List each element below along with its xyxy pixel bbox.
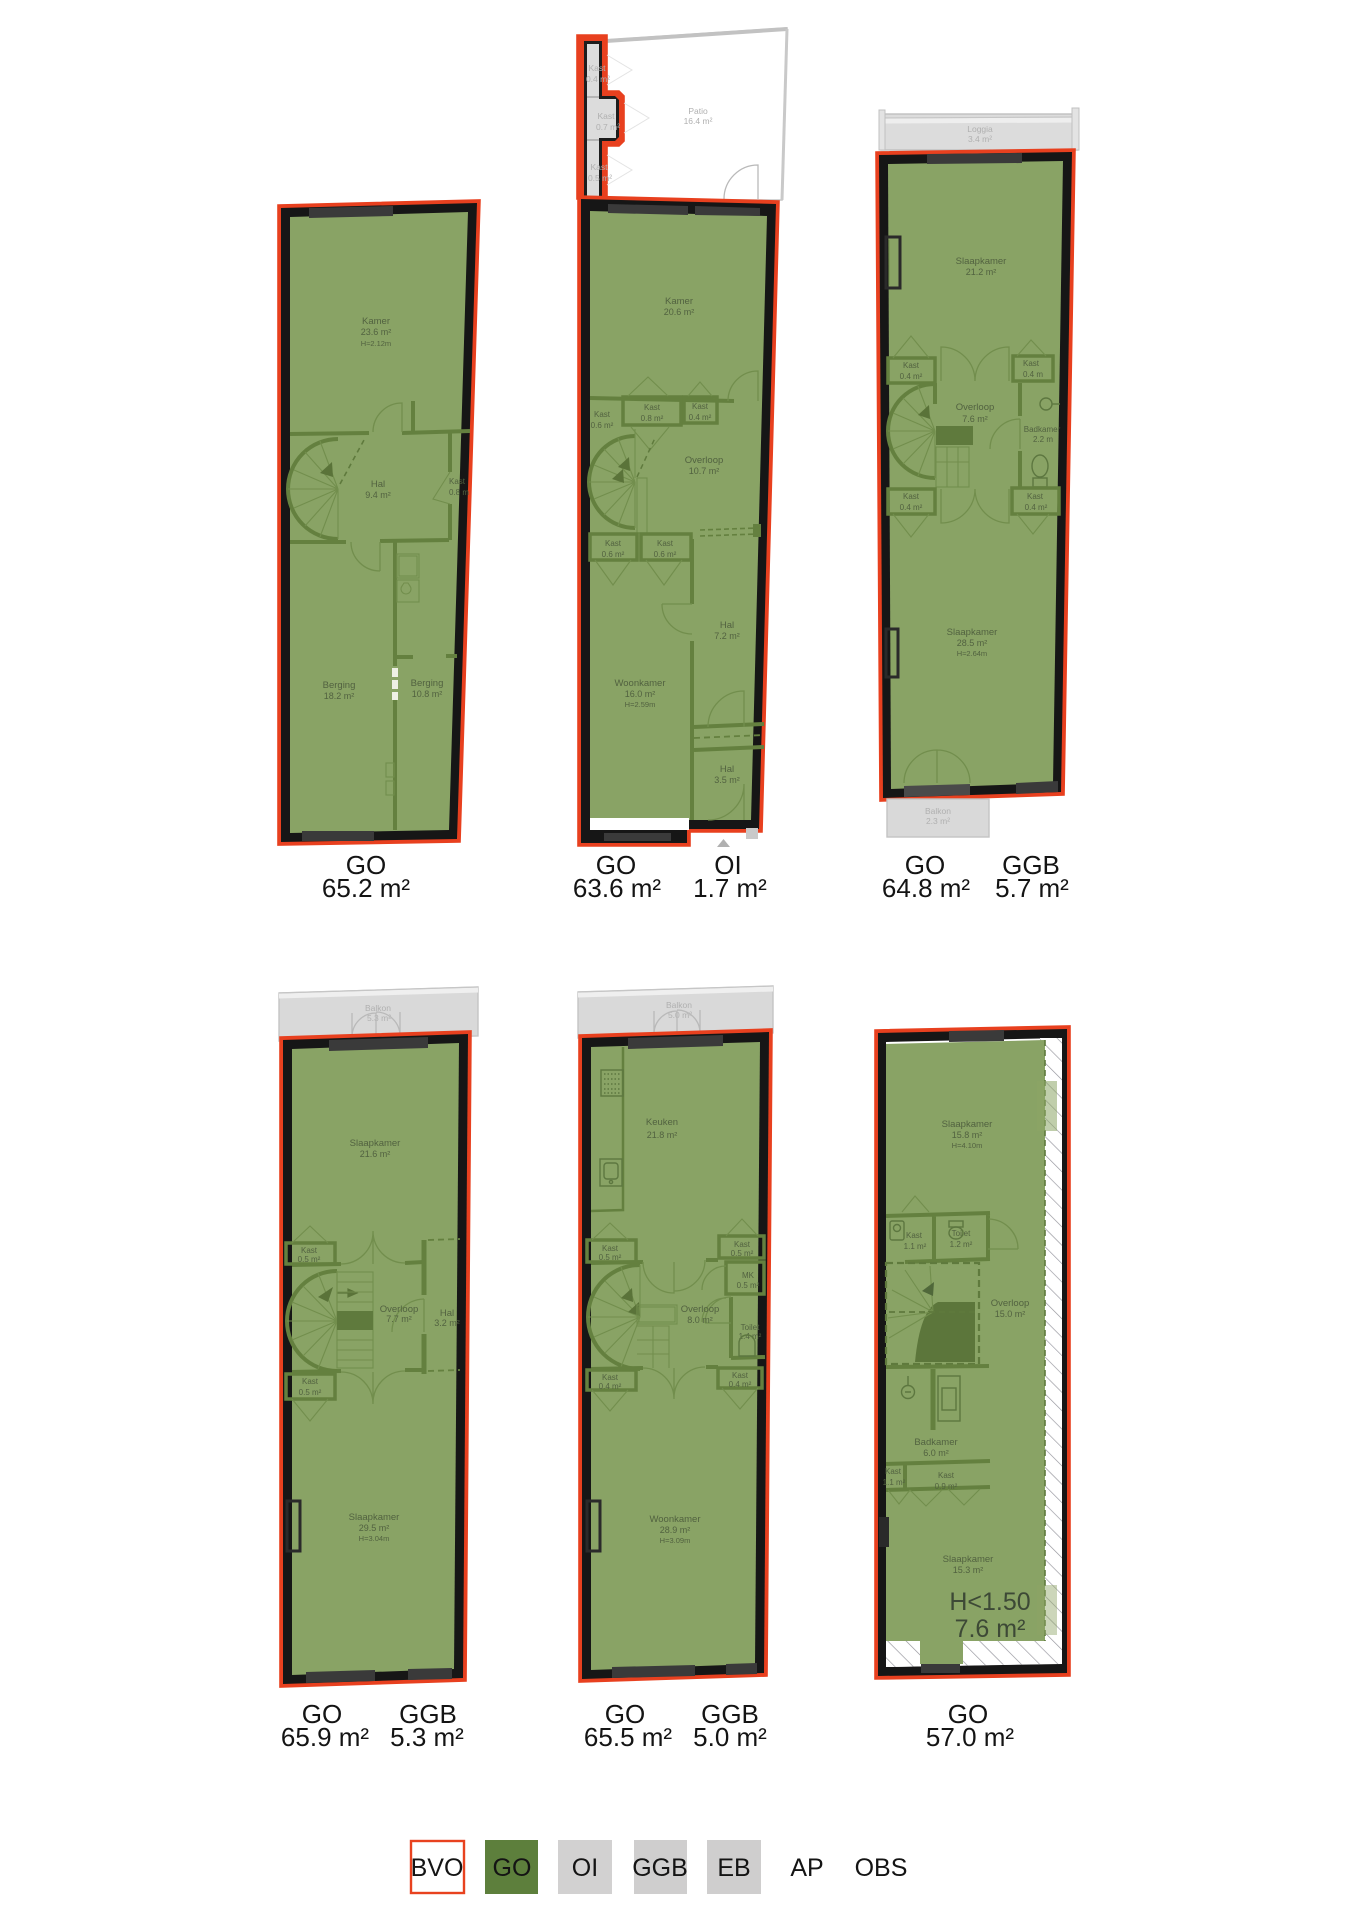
svg-text:0.5 m²: 0.5 m² xyxy=(299,1388,322,1397)
svg-text:Kamer: Kamer xyxy=(362,316,390,327)
svg-text:18.2 m²: 18.2 m² xyxy=(324,691,355,701)
svg-text:H≈2.64m: H≈2.64m xyxy=(957,649,987,658)
svg-text:OI: OI xyxy=(572,1854,598,1882)
svg-text:Kast: Kast xyxy=(602,1244,619,1253)
svg-text:0.4 m²: 0.4 m² xyxy=(900,503,923,512)
svg-text:3.5 m²: 3.5 m² xyxy=(714,775,740,785)
svg-text:5.7 m²: 5.7 m² xyxy=(995,873,1069,903)
svg-text:Loggia: Loggia xyxy=(967,124,993,134)
svg-text:Woonkamer: Woonkamer xyxy=(614,678,665,689)
svg-text:16.4 m²: 16.4 m² xyxy=(684,116,713,126)
svg-text:Kast: Kast xyxy=(657,539,674,548)
svg-text:0.6 m²: 0.6 m² xyxy=(654,550,677,559)
svg-text:BVO: BVO xyxy=(411,1854,464,1882)
svg-text:16.0 m²: 16.0 m² xyxy=(625,689,656,699)
svg-text:20.6 m²: 20.6 m² xyxy=(664,307,695,317)
svg-text:1.7 m²: 1.7 m² xyxy=(693,873,767,903)
svg-text:Kast: Kast xyxy=(449,477,466,486)
svg-text:5.0 m²: 5.0 m² xyxy=(693,1722,767,1752)
svg-text:3.2 m²: 3.2 m² xyxy=(434,1318,460,1328)
svg-text:Slaapkamer: Slaapkamer xyxy=(947,627,998,638)
svg-text:H=2.59m: H=2.59m xyxy=(625,700,656,709)
svg-text:Kast: Kast xyxy=(597,111,615,121)
svg-text:Kast: Kast xyxy=(692,402,709,411)
svg-text:1.1 m²: 1.1 m² xyxy=(904,1242,927,1251)
svg-text:Kast: Kast xyxy=(732,1371,749,1380)
svg-text:0.4 m²: 0.4 m² xyxy=(900,372,923,381)
svg-text:0.6 m²: 0.6 m² xyxy=(602,550,625,559)
svg-text:7.7 m²: 7.7 m² xyxy=(386,1314,412,1324)
svg-text:Balkon: Balkon xyxy=(925,806,951,816)
svg-text:Kast: Kast xyxy=(903,492,920,501)
svg-text:GGB: GGB xyxy=(632,1854,688,1882)
svg-text:Hal: Hal xyxy=(371,479,385,490)
svg-text:Hal: Hal xyxy=(720,764,734,775)
svg-text:15.8 m²: 15.8 m² xyxy=(952,1130,983,1140)
svg-text:0.4 m: 0.4 m xyxy=(1023,370,1043,379)
svg-text:Kast: Kast xyxy=(644,403,661,412)
svg-text:9.4 m²: 9.4 m² xyxy=(365,490,391,500)
svg-text:Kamer: Kamer xyxy=(665,296,693,307)
svg-text:10.8 m²: 10.8 m² xyxy=(412,689,443,699)
svg-text:GO: GO xyxy=(493,1854,532,1882)
svg-text:Overloop: Overloop xyxy=(685,455,724,466)
svg-text:1.1 m²: 1.1 m² xyxy=(883,1478,906,1487)
svg-text:H=3.09m: H=3.09m xyxy=(660,1536,691,1545)
svg-text:Kast: Kast xyxy=(588,63,606,73)
svg-text:5.3 m²: 5.3 m² xyxy=(390,1722,464,1752)
svg-text:0.5 m²: 0.5 m² xyxy=(599,1253,622,1262)
svg-text:Hal: Hal xyxy=(720,620,734,631)
svg-text:65.5 m²: 65.5 m² xyxy=(584,1722,672,1752)
svg-text:0.8 m: 0.8 m xyxy=(449,488,469,497)
svg-text:Balkon: Balkon xyxy=(666,1000,692,1010)
svg-text:Slaapkamer: Slaapkamer xyxy=(943,1554,994,1565)
svg-text:7.6 m²: 7.6 m² xyxy=(962,414,988,424)
svg-text:0.5 m²: 0.5 m² xyxy=(588,173,612,183)
svg-text:23.6 m²: 23.6 m² xyxy=(361,327,392,337)
svg-text:Badkamer: Badkamer xyxy=(914,1437,957,1448)
svg-text:Kast: Kast xyxy=(302,1377,319,1386)
svg-text:Slaapkamer: Slaapkamer xyxy=(942,1119,993,1130)
svg-text:Kast: Kast xyxy=(301,1246,318,1255)
svg-text:Overloop: Overloop xyxy=(991,1298,1030,1309)
svg-text:10.7 m²: 10.7 m² xyxy=(689,466,720,476)
svg-text:15.0 m²: 15.0 m² xyxy=(995,1309,1026,1319)
svg-text:Kast: Kast xyxy=(590,162,608,172)
svg-text:OBS: OBS xyxy=(855,1854,908,1882)
svg-text:Slaapkamer: Slaapkamer xyxy=(956,256,1007,267)
svg-text:0.4 m²: 0.4 m² xyxy=(1025,503,1048,512)
svg-text:28.9 m²: 28.9 m² xyxy=(660,1525,691,1535)
svg-text:MK: MK xyxy=(742,1271,755,1280)
svg-text:0.4 m²: 0.4 m² xyxy=(729,1380,752,1389)
svg-text:H≈2.12m: H≈2.12m xyxy=(361,339,391,348)
svg-text:Slaapkamer: Slaapkamer xyxy=(349,1512,400,1523)
svg-text:Badkamer: Badkamer xyxy=(1024,425,1061,434)
svg-text:64.8 m²: 64.8 m² xyxy=(882,873,970,903)
svg-text:Kast: Kast xyxy=(903,361,920,370)
svg-text:Kast: Kast xyxy=(885,1467,902,1476)
svg-text:0.4 m²: 0.4 m² xyxy=(586,74,610,84)
svg-text:0.5 m²: 0.5 m² xyxy=(731,1249,754,1258)
svg-text:Kast: Kast xyxy=(938,1471,955,1480)
svg-text:0.9 m²: 0.9 m² xyxy=(935,1482,958,1491)
svg-text:0.5 m²: 0.5 m² xyxy=(737,1281,760,1290)
svg-text:0.4 m²: 0.4 m² xyxy=(689,413,712,422)
svg-text:Kast: Kast xyxy=(906,1231,923,1240)
svg-text:Patio: Patio xyxy=(688,106,708,116)
svg-text:H=3.04m: H=3.04m xyxy=(359,1534,390,1543)
svg-text:0.4 m²: 0.4 m² xyxy=(599,1382,622,1391)
svg-text:Keuken: Keuken xyxy=(646,1117,678,1128)
svg-text:EB: EB xyxy=(717,1854,750,1882)
svg-text:H<1.50: H<1.50 xyxy=(949,1588,1030,1616)
svg-text:Kast: Kast xyxy=(602,1373,619,1382)
svg-text:57.0 m²: 57.0 m² xyxy=(926,1722,1014,1752)
svg-text:Toilet: Toilet xyxy=(741,1323,760,1332)
svg-text:Overloop: Overloop xyxy=(956,402,995,413)
svg-text:7.6 m²: 7.6 m² xyxy=(955,1615,1026,1643)
svg-text:65.9 m²: 65.9 m² xyxy=(281,1722,369,1752)
svg-text:2.2 m: 2.2 m xyxy=(1033,435,1053,444)
svg-text:28.5 m²: 28.5 m² xyxy=(957,638,988,648)
svg-text:8.0 m²: 8.0 m² xyxy=(687,1315,713,1325)
svg-text:Slaapkamer: Slaapkamer xyxy=(350,1138,401,1149)
svg-text:65.2 m²: 65.2 m² xyxy=(322,873,410,903)
svg-text:7.2 m²: 7.2 m² xyxy=(714,631,740,641)
svg-text:0.5 m²: 0.5 m² xyxy=(298,1255,321,1264)
svg-text:AP: AP xyxy=(790,1854,823,1882)
svg-text:63.6 m²: 63.6 m² xyxy=(573,873,661,903)
svg-text:21.2 m²: 21.2 m² xyxy=(966,267,997,277)
svg-text:Berging: Berging xyxy=(323,680,356,691)
svg-text:21.6 m²: 21.6 m² xyxy=(360,1149,391,1159)
svg-text:Kast: Kast xyxy=(1027,492,1044,501)
svg-text:29.5 m²: 29.5 m² xyxy=(359,1523,390,1533)
svg-text:Kast: Kast xyxy=(734,1240,751,1249)
svg-text:Kast: Kast xyxy=(605,539,622,548)
svg-text:Berging: Berging xyxy=(411,678,444,689)
svg-text:21.8 m²: 21.8 m² xyxy=(647,1130,678,1140)
svg-text:3.4 m²: 3.4 m² xyxy=(968,134,992,144)
svg-text:6.0 m²: 6.0 m² xyxy=(923,1448,949,1458)
svg-text:0.6 m²: 0.6 m² xyxy=(591,421,614,430)
svg-text:H=4.10m: H=4.10m xyxy=(952,1141,983,1150)
svg-text:Overloop: Overloop xyxy=(681,1304,720,1315)
svg-text:15.3 m²: 15.3 m² xyxy=(953,1565,984,1575)
svg-text:Woonkamer: Woonkamer xyxy=(649,1514,700,1525)
svg-text:Kast: Kast xyxy=(594,410,611,419)
svg-text:2.3 m²: 2.3 m² xyxy=(926,816,950,826)
svg-text:0.7 m²: 0.7 m² xyxy=(596,122,620,132)
svg-text:Kast: Kast xyxy=(1023,359,1040,368)
svg-text:0.8 m²: 0.8 m² xyxy=(641,414,664,423)
svg-text:1.2 m²: 1.2 m² xyxy=(950,1240,973,1249)
